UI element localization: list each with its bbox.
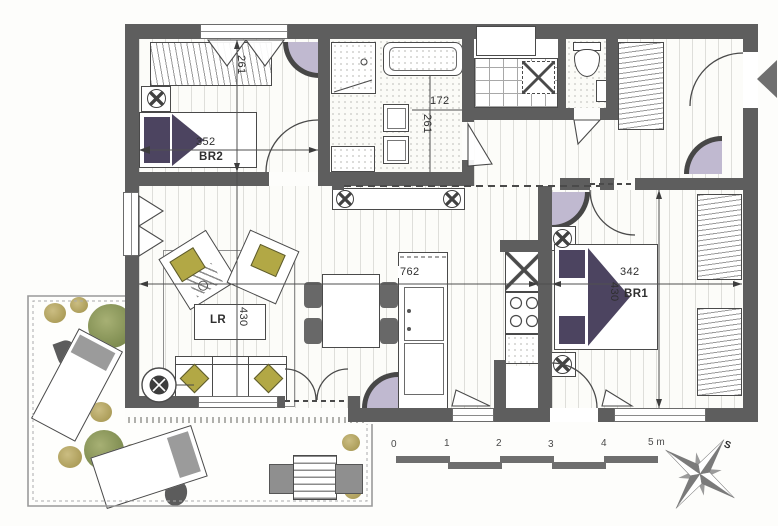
washer-slot <box>522 61 555 94</box>
scale-bar-segment <box>604 456 658 463</box>
terrace-shrub-icon <box>342 434 360 451</box>
bathtub <box>383 42 463 76</box>
lr-depth-dim: 430 <box>237 307 249 327</box>
br1-label: BR1 <box>624 288 648 300</box>
compass-icon <box>642 416 759 526</box>
lr-width-dim: 762 <box>398 266 422 278</box>
lr-bottom-window <box>198 396 278 408</box>
entry-wardrobe <box>618 42 664 130</box>
closet-wc-wall <box>558 24 566 108</box>
bath-tray <box>331 146 375 172</box>
scale-tick-label: 3 <box>548 439 554 450</box>
br2-depth-dim: 261 <box>235 55 247 75</box>
br1-depth-dim: 430 <box>608 282 620 302</box>
br1-pillow <box>559 250 585 278</box>
br2-label: BR2 <box>199 151 223 163</box>
hallway-floor <box>474 120 614 188</box>
bath-cabinet <box>383 136 409 164</box>
scale-tick-label: 0 <box>391 439 397 450</box>
bath-depth-dim: 261 <box>421 114 433 134</box>
lamp-icon <box>553 229 572 248</box>
scale-tick-label: 2 <box>496 438 502 449</box>
lamp-icon <box>336 190 354 208</box>
br1-top-wall-a <box>560 178 590 190</box>
br1-window <box>614 408 706 422</box>
br1-door-gap <box>550 408 598 422</box>
lr-coffee-table <box>194 304 266 340</box>
hall-stub <box>600 178 614 190</box>
terrace-shrub-icon <box>70 297 88 313</box>
closet-bottom-wall <box>462 108 574 120</box>
dining-chair <box>304 282 322 308</box>
br1-width-dim: 342 <box>618 266 642 278</box>
shaft-wall <box>494 360 506 408</box>
hall-stub <box>332 180 344 190</box>
shower <box>331 42 376 94</box>
scale-tick-label: 1 <box>444 438 450 449</box>
lr-left-window <box>123 192 139 256</box>
dining-chair <box>380 318 398 344</box>
br1-pillow <box>559 316 585 344</box>
kitchen-window <box>452 408 494 422</box>
terrace-edge-band <box>128 417 368 423</box>
br2-bottom-wall <box>139 172 269 186</box>
scale-tick-label: 4 <box>601 438 607 449</box>
bathtub-basin <box>389 47 457 71</box>
br2-width-dim: 352 <box>196 136 216 148</box>
dining-chair <box>304 318 322 344</box>
br1-left-wall <box>538 186 552 408</box>
kitchen-stub-wall <box>500 240 544 252</box>
wc-right-wall <box>606 24 618 120</box>
dining-table <box>322 274 380 348</box>
entry-door-gap <box>743 52 758 108</box>
scale-tick-label: 5 m <box>648 437 665 448</box>
terrace-shrub-icon <box>44 303 66 323</box>
lr-label: LR <box>210 314 226 326</box>
scale-bar-segment <box>448 462 502 469</box>
dining-chair <box>380 282 398 308</box>
lamp-icon <box>147 89 166 108</box>
scale-bar-segment <box>500 456 554 463</box>
lamp-icon <box>443 190 461 208</box>
wc-bottom-wall-b <box>600 108 618 120</box>
entrance-arrow-icon <box>757 60 777 98</box>
scale-bar-segment <box>552 462 606 469</box>
br2-wardrobe <box>150 42 272 86</box>
terrace-bench <box>335 464 363 494</box>
terrace-shrub-icon <box>58 446 82 468</box>
br2-bath-wall <box>318 24 330 186</box>
br1-wardrobe <box>697 194 742 280</box>
kitchen-niche <box>506 366 538 408</box>
lamp-icon <box>553 355 572 374</box>
br1-top-wall-b <box>635 178 743 190</box>
br2-pillow <box>144 117 170 163</box>
bath-cabinet <box>383 104 409 132</box>
compass-north-label: S <box>722 439 732 452</box>
floor-plan: 352 BR2 261 172 261 762 LR 430 342 BR1 4… <box>0 0 778 526</box>
bath-width-dim: 172 <box>430 95 450 107</box>
terrace-table <box>293 455 337 500</box>
br2-window <box>200 24 288 39</box>
utility-niche <box>476 26 536 56</box>
br1-wardrobe <box>697 308 742 396</box>
scale-bar-segment <box>396 456 450 463</box>
